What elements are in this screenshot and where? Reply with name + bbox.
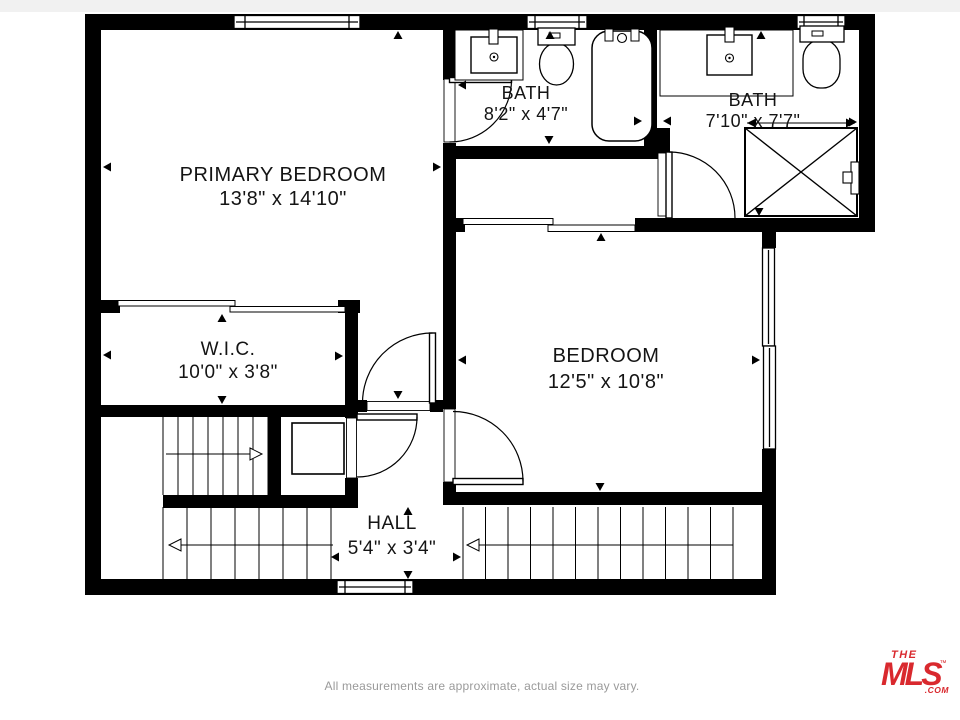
themls-logo: THE MLS ™ .COM — [881, 650, 955, 695]
bath2-toilet — [800, 26, 844, 88]
room-name: W.I.C. — [178, 338, 278, 361]
wic-slider-panel — [230, 307, 345, 313]
window-bedroom-right-lower — [764, 346, 776, 449]
bath2-vanity-sink — [660, 27, 793, 96]
stairs-lower-left-flight — [163, 507, 333, 579]
window-bedroom-right-upper — [763, 248, 775, 346]
bedroom-closet-slider-panel — [548, 225, 635, 232]
closet-unit — [292, 423, 344, 474]
bath1-toilet — [538, 28, 575, 85]
bath1-bathtub — [592, 29, 652, 141]
room-dims: 7'10" x 7'7" — [706, 111, 801, 132]
room-label-hall: HALL 5'4" x 3'4" — [348, 511, 437, 561]
room-dims: 5'4" x 3'4" — [348, 536, 437, 561]
floorplan-canvas: PRIMARY BEDROOM 13'8" x 14'10" BATH 8'2"… — [0, 0, 960, 720]
stairs-up-arrow — [250, 448, 262, 460]
stairs-upper-flight — [163, 417, 268, 495]
bath2-shower — [745, 128, 859, 216]
floorplan-drawing — [0, 0, 960, 720]
sliding-doors — [118, 219, 635, 313]
door-bath2 — [666, 152, 735, 218]
bath1-vanity-sink — [455, 29, 523, 80]
room-label-bath-1: BATH 8'2" x 4'7" — [484, 83, 568, 125]
room-label-bedroom: BEDROOM 12'5" x 10'8" — [548, 343, 664, 395]
door-bedroom — [453, 412, 523, 485]
room-name: BATH — [484, 83, 568, 104]
logo-trademark: ™ — [940, 660, 947, 667]
room-dims: 13'8" x 14'10" — [180, 187, 387, 211]
stairs-main-flight — [463, 507, 733, 579]
room-label-primary-bedroom: PRIMARY BEDROOM 13'8" x 14'10" — [180, 163, 387, 211]
room-dims: 8'2" x 4'7" — [484, 104, 568, 125]
room-dims: 12'5" x 10'8" — [548, 369, 664, 395]
room-name: BEDROOM — [548, 343, 664, 369]
room-name: HALL — [348, 511, 437, 536]
window-hall-bottom — [337, 581, 413, 594]
room-dims: 10'0" x 3'8" — [178, 361, 278, 384]
disclaimer-text: All measurements are approximate, actual… — [325, 679, 640, 693]
stairs-down-arrow — [467, 539, 479, 551]
wic-slider-panel — [118, 301, 235, 307]
window-bath1-top — [527, 16, 587, 29]
door-closet — [357, 414, 417, 477]
room-label-bath-2: BATH 7'10" x 7'7" — [706, 90, 801, 132]
room-label-wic: W.I.C. 10'0" x 3'8" — [178, 338, 278, 384]
stairs-down-arrow — [169, 539, 181, 551]
room-name: BATH — [706, 90, 801, 111]
bedroom-closet-slider-panel — [463, 219, 553, 225]
room-name: PRIMARY BEDROOM — [180, 163, 387, 187]
window-primary-top — [234, 16, 360, 29]
